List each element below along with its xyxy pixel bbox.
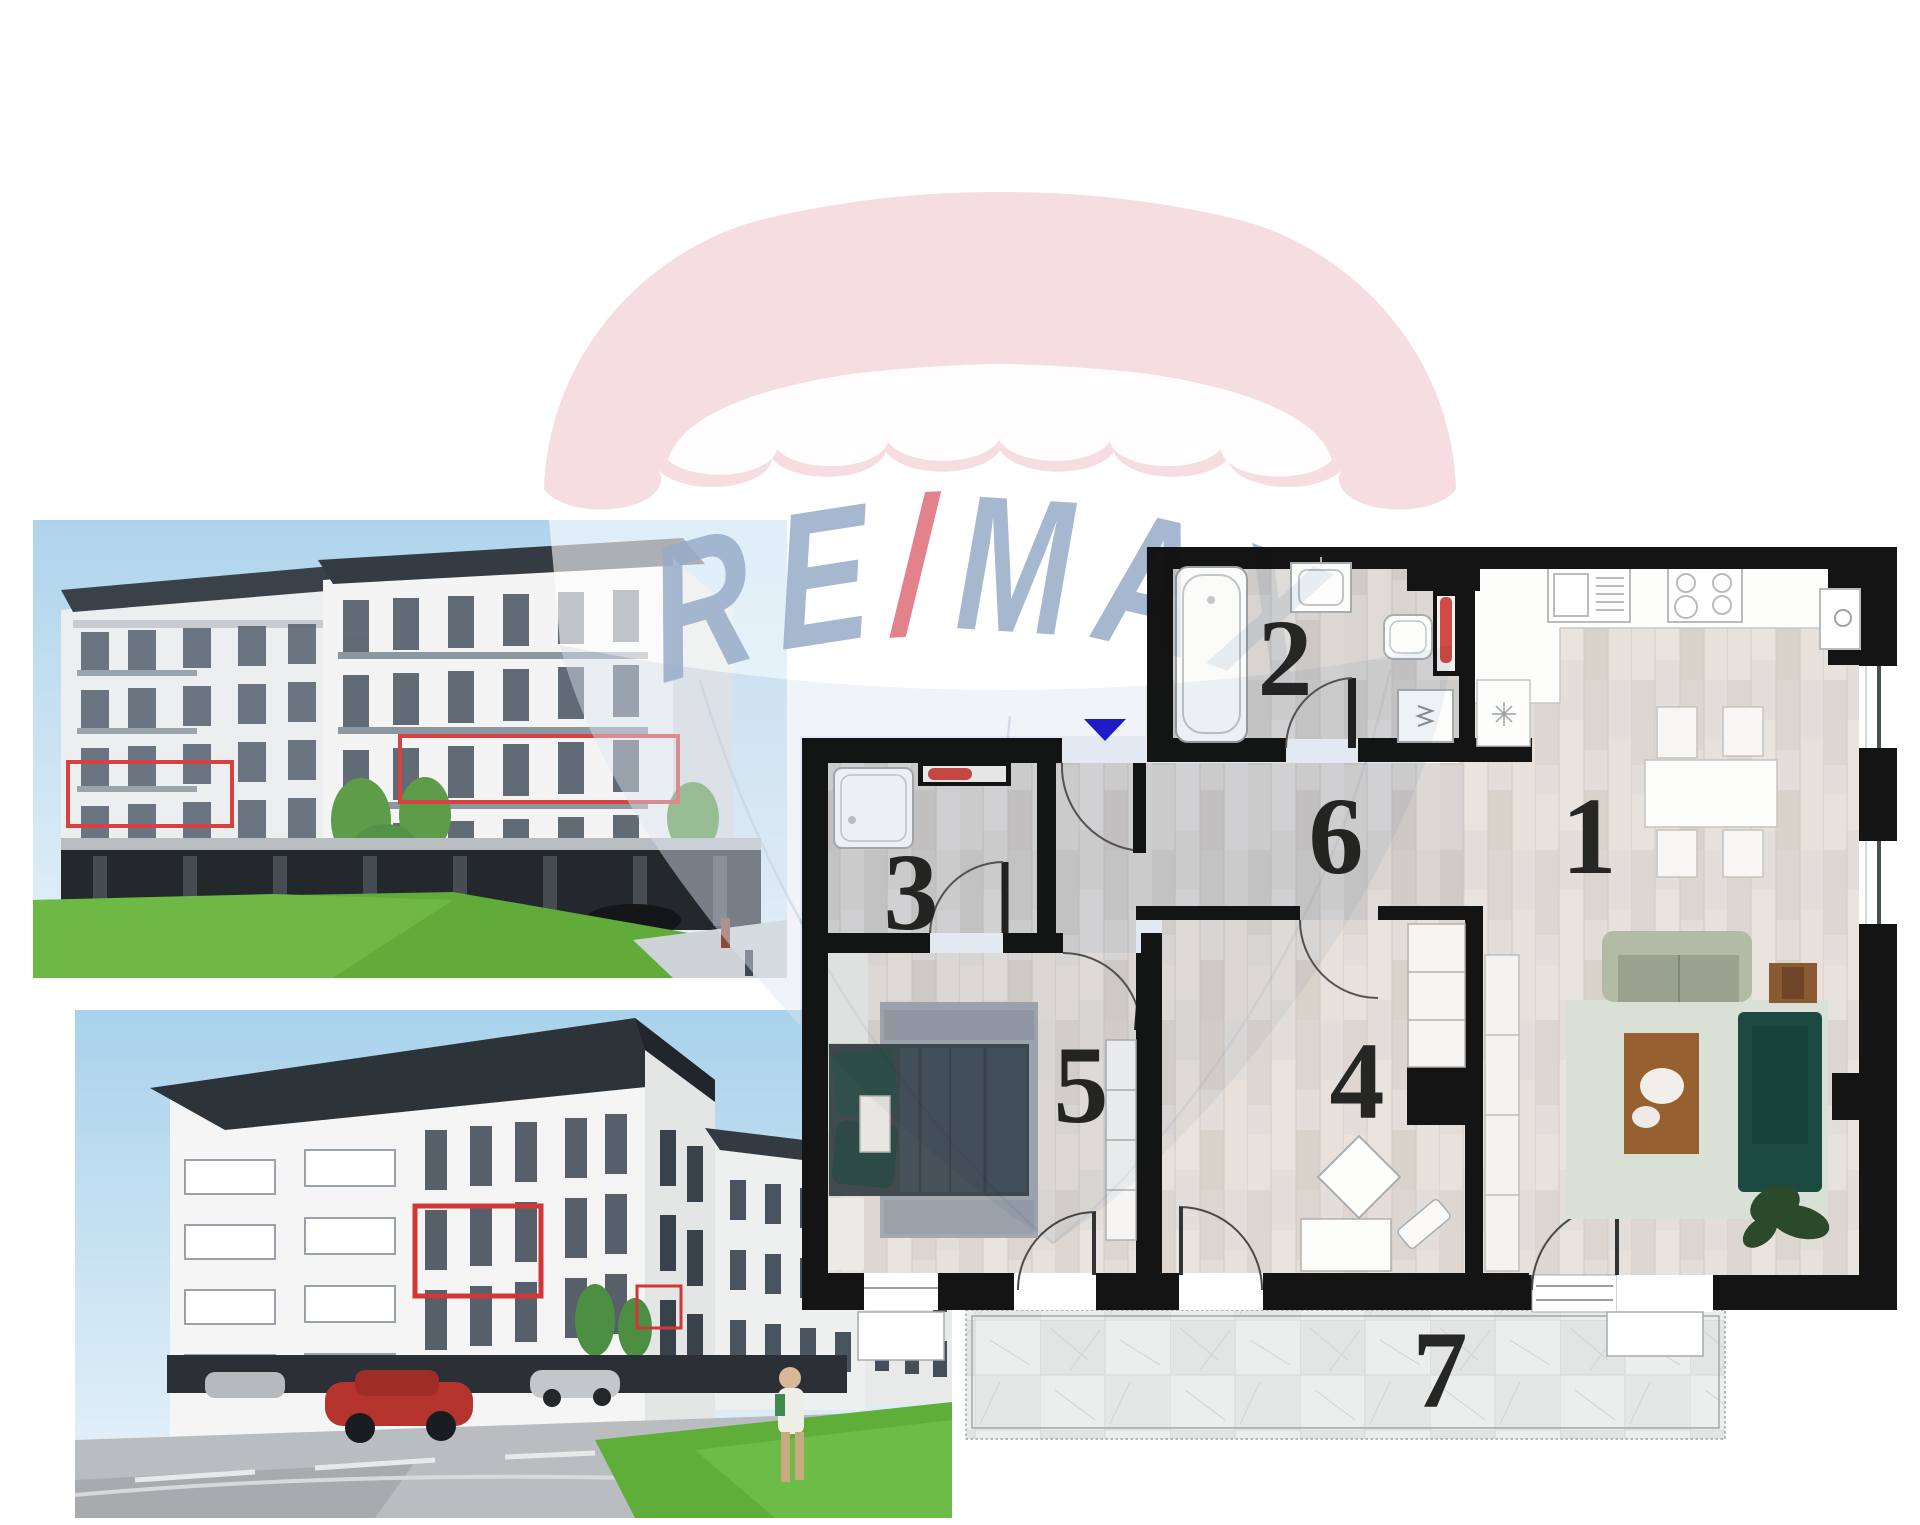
svg-text:3: 3: [884, 831, 939, 953]
svg-text:4: 4: [1330, 1020, 1385, 1142]
svg-text:2: 2: [1258, 597, 1313, 719]
svg-text:7: 7: [1413, 1309, 1468, 1431]
svg-text:1: 1: [1562, 775, 1617, 897]
svg-text:5: 5: [1054, 1024, 1109, 1146]
svg-text:6: 6: [1309, 775, 1364, 897]
